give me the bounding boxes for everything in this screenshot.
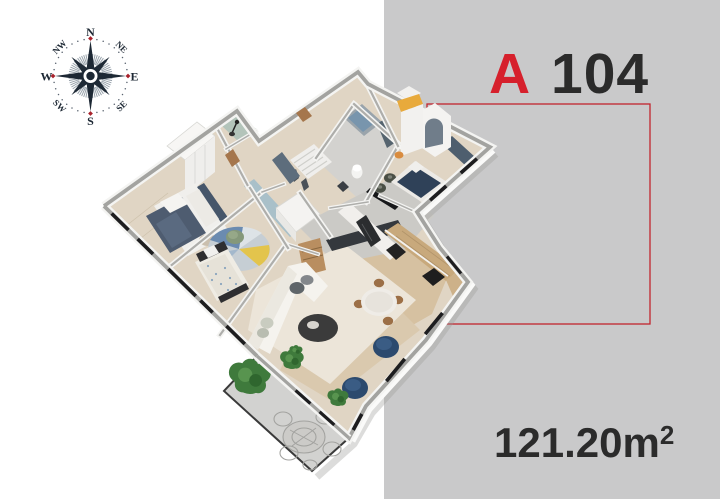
svg-text:A: A [489,42,530,106]
svg-text:121.20m2: 121.20m2 [494,419,674,466]
svg-text:N: N [86,25,95,39]
svg-text:W: W [41,70,53,84]
svg-text:S: S [87,114,94,128]
svg-text:E: E [130,70,138,84]
svg-text:104: 104 [551,42,649,106]
